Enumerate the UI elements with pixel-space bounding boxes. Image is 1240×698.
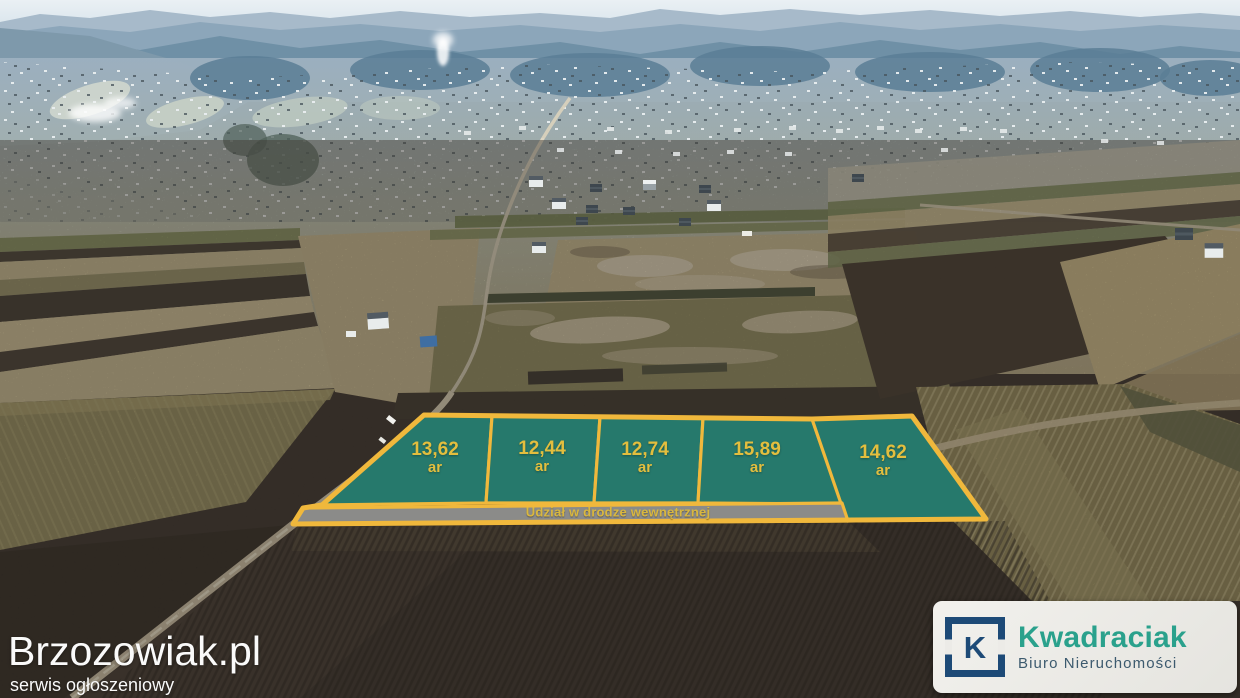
watermark-tagline: serwis ogłoszeniowy <box>10 675 261 696</box>
aerial-listing-photo: 13,62 ar 12,44 ar 12,74 ar 15,89 ar 14,6… <box>0 0 1240 698</box>
plot-polygon-2 <box>486 416 600 503</box>
k-square-icon: K <box>945 617 1005 677</box>
k-letter: K <box>964 632 986 663</box>
watermark-site-name: Brzozowiak.pl <box>8 630 261 673</box>
landscape-scene <box>0 0 1240 698</box>
agency-subtitle: Biuro Nieruchomości <box>1018 655 1187 672</box>
watermark: Brzozowiak.pl serwis ogłoszeniowy <box>8 630 261 696</box>
van <box>742 231 752 236</box>
agency-logo-card: K Kwadraciak Biuro Nieruchomości <box>933 601 1237 693</box>
agency-brand-name: Kwadraciak <box>1018 622 1187 654</box>
plot-polygon-3 <box>594 417 703 503</box>
